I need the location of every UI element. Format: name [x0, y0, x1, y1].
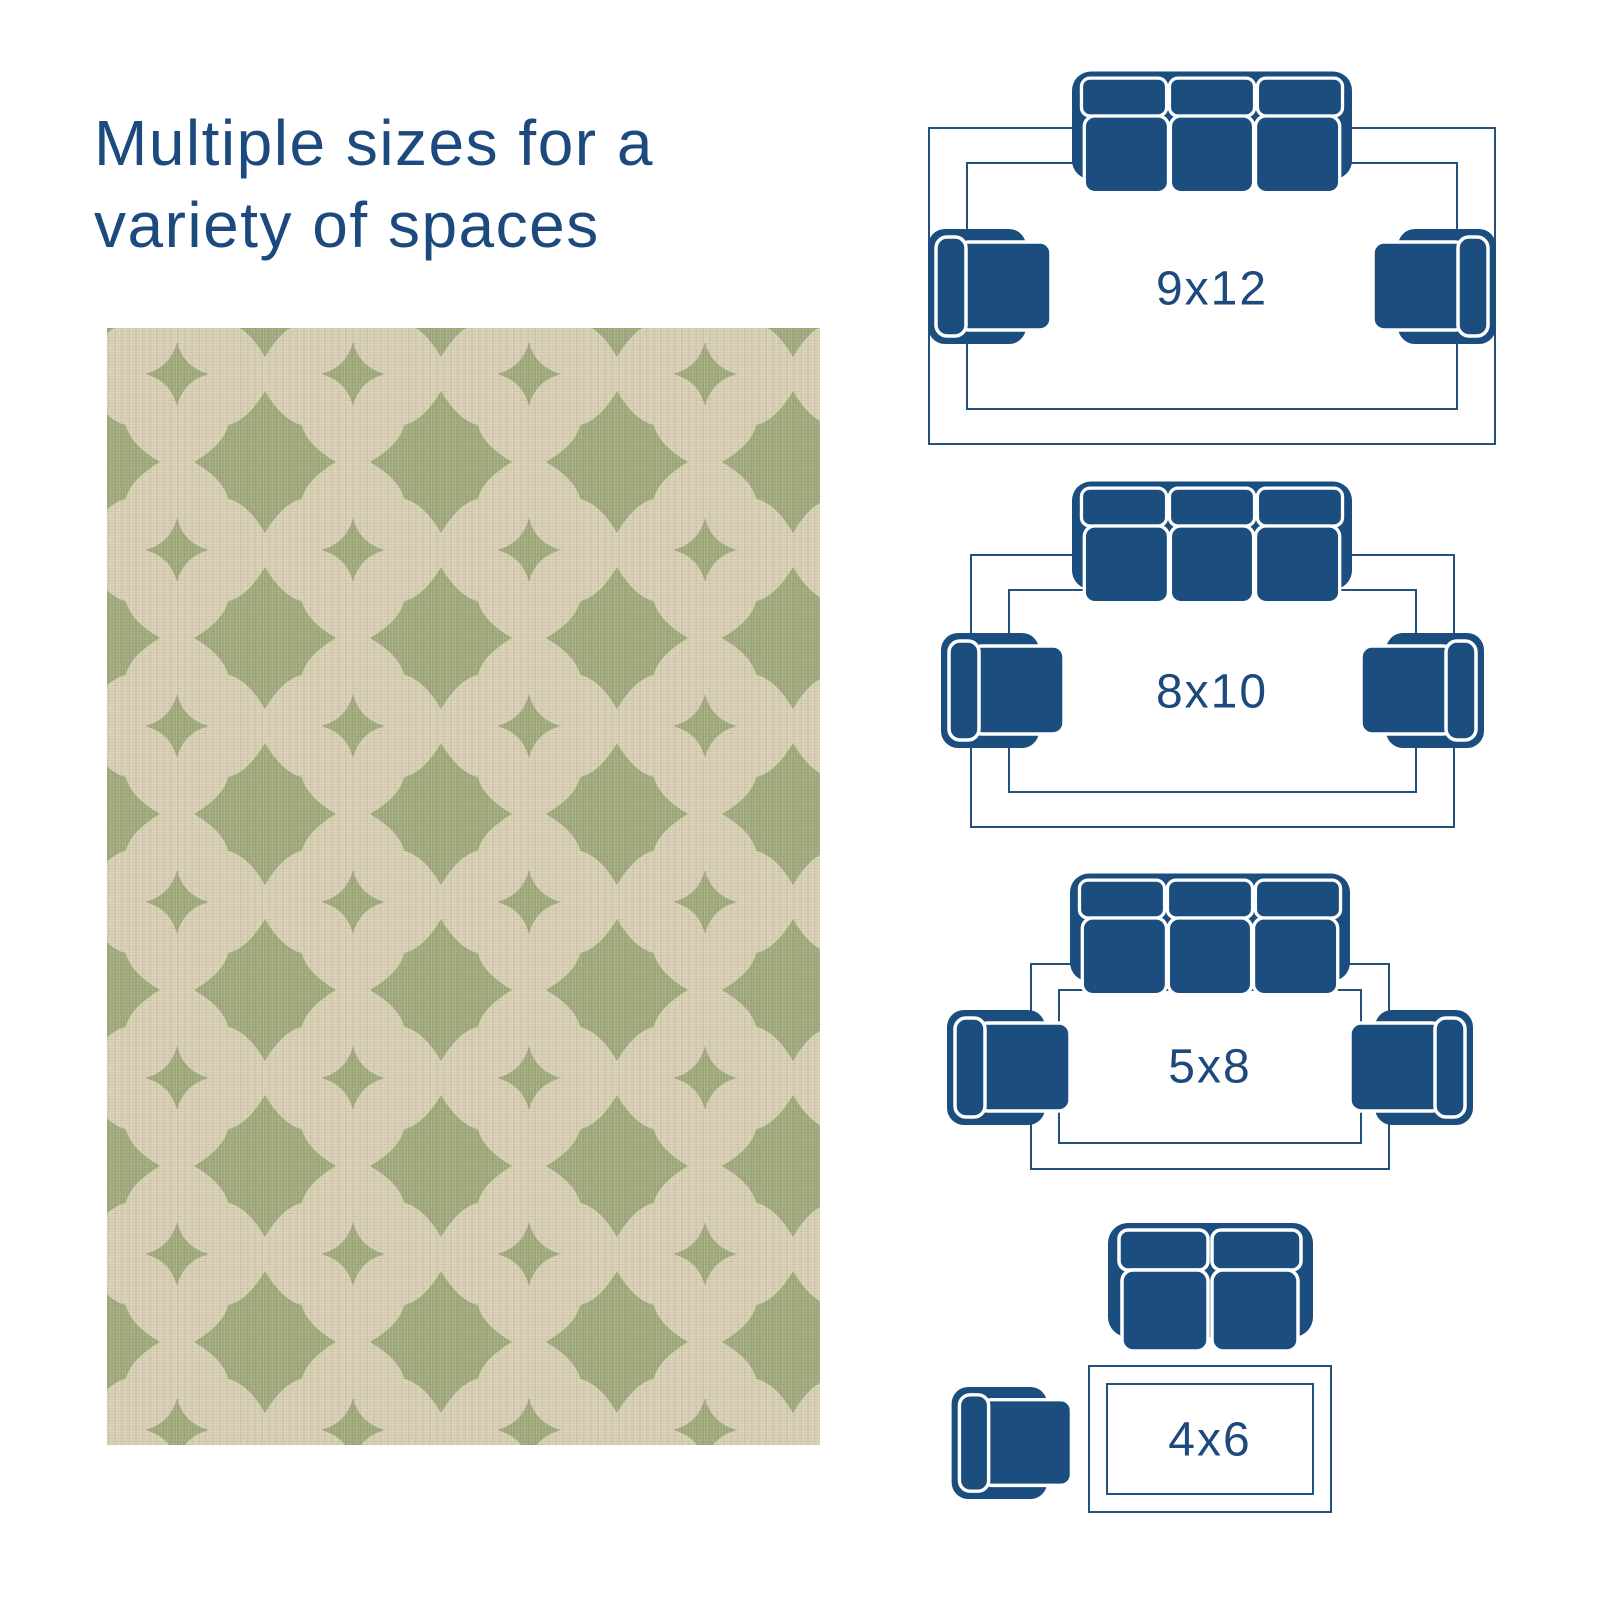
- page-title-line1: Multiple sizes for a: [94, 102, 734, 184]
- page-title-line2: variety of spaces: [94, 184, 734, 266]
- armchair-icon: [928, 229, 1053, 344]
- armchair-icon: [950, 1387, 1075, 1499]
- product-infographic: Multiple sizes for a variety of spaces: [0, 0, 1600, 1600]
- loveseat-icon: [1108, 1223, 1313, 1353]
- armchair-icon: [941, 633, 1066, 748]
- armchair-icon: [947, 1010, 1072, 1125]
- rug-trellis-pattern: [107, 328, 820, 1445]
- armchair-icon: [1348, 1010, 1473, 1125]
- size-label: 5x8: [1168, 1040, 1251, 1095]
- armchair-icon: [1371, 229, 1496, 344]
- size-label: 4x6: [1168, 1413, 1251, 1468]
- rug-product-image: [107, 328, 820, 1445]
- sofa-icon: [1072, 478, 1352, 608]
- size-label: 8x10: [1156, 665, 1268, 720]
- sofa-icon: [1070, 870, 1350, 1000]
- size-label: 9x12: [1156, 262, 1268, 317]
- page-title: Multiple sizes for a variety of spaces: [94, 102, 734, 266]
- armchair-icon: [1359, 633, 1484, 748]
- sofa-icon: [1072, 68, 1352, 198]
